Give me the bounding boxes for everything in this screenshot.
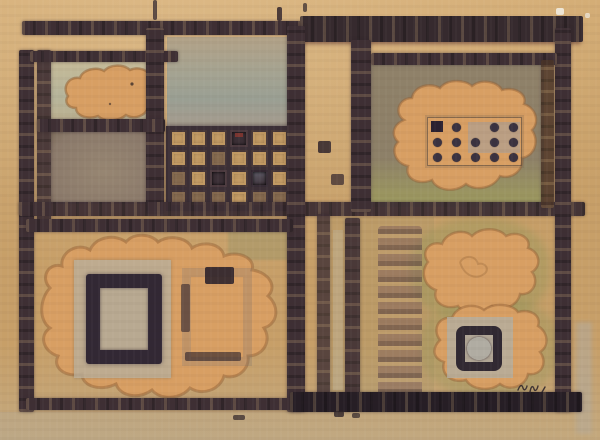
taupe-grey-cell bbox=[51, 131, 148, 204]
stamp-square-marker bbox=[431, 121, 443, 132]
stamp-dot bbox=[509, 138, 518, 147]
waffle-cell bbox=[210, 170, 227, 187]
streak-vertical bbox=[345, 218, 360, 398]
stamp-dot bbox=[509, 153, 518, 162]
bottom-tick-mark bbox=[352, 413, 360, 418]
top-tick-mark bbox=[303, 3, 307, 12]
waffle-cell bbox=[230, 150, 247, 167]
stamp-dot bbox=[509, 123, 518, 132]
stamp-dot bbox=[471, 153, 480, 162]
stamp-dot bbox=[490, 123, 499, 132]
waffle-cell bbox=[271, 130, 288, 147]
bottom-margin-wash bbox=[0, 412, 600, 440]
frame-h-below-blob-cell bbox=[37, 119, 165, 132]
waffle-cell bbox=[271, 150, 288, 167]
dark-patch bbox=[205, 267, 234, 284]
waffle-cell bbox=[251, 150, 268, 167]
stamp-dot bbox=[452, 153, 461, 162]
frame-bottom-band-right bbox=[290, 392, 582, 412]
waffle-cell bbox=[210, 150, 227, 167]
dot-grid-stamp bbox=[427, 117, 522, 166]
waffle-cell bbox=[190, 150, 207, 167]
frame-bottom-band-left bbox=[26, 398, 302, 410]
signature-mark bbox=[516, 381, 548, 393]
stamp-dot bbox=[452, 123, 461, 132]
stamp-dot bbox=[452, 138, 461, 147]
waffle-cell bbox=[271, 170, 288, 187]
waffle-cell bbox=[190, 130, 207, 147]
small-dark-mark bbox=[318, 141, 331, 153]
frame-right-section-left bbox=[351, 40, 371, 212]
waffle-cell bbox=[230, 130, 247, 147]
frame-top-band-right bbox=[300, 16, 583, 42]
waffle-cell bbox=[230, 170, 247, 187]
stamp-dot bbox=[433, 153, 442, 162]
frame-right-inner-top bbox=[371, 53, 557, 65]
waffle-cell bbox=[190, 170, 207, 187]
dark-patch bbox=[181, 284, 190, 332]
dark-patch bbox=[185, 352, 241, 361]
bottom-tick-mark bbox=[233, 415, 245, 420]
stamp-dot bbox=[471, 138, 480, 147]
waffle-stamp-grid bbox=[166, 126, 292, 211]
waffle-cell bbox=[210, 130, 227, 147]
frame-bottom-left-cell-top bbox=[26, 219, 293, 232]
mauve-streak-band bbox=[378, 226, 422, 398]
waffle-cell bbox=[170, 150, 187, 167]
pale-streak bbox=[333, 230, 343, 390]
waffle-cell bbox=[170, 170, 187, 187]
top-tick-mark bbox=[153, 0, 157, 20]
streak-vertical bbox=[317, 214, 330, 396]
circle-square-stamp bbox=[456, 326, 502, 371]
bottom-tick-mark bbox=[334, 411, 344, 417]
white-paint-speck bbox=[556, 8, 564, 15]
stamp-dot bbox=[490, 153, 499, 162]
stamp-circle-hole bbox=[467, 337, 491, 360]
hollow-square-stamp bbox=[86, 274, 162, 364]
frame-left-inner bbox=[37, 50, 51, 222]
waffle-cell bbox=[251, 130, 268, 147]
stamp-dot bbox=[490, 138, 499, 147]
small-dark-mark bbox=[331, 174, 344, 185]
waffle-cell bbox=[170, 130, 187, 147]
frame-top-band-left bbox=[22, 21, 306, 35]
waffle-cell bbox=[251, 170, 268, 187]
white-paint-speck bbox=[585, 13, 590, 18]
stamp-dot bbox=[433, 138, 442, 147]
painting-canvas bbox=[0, 0, 600, 440]
pale-green-grey-cell bbox=[167, 37, 287, 126]
frame-right-outer bbox=[555, 28, 571, 412]
frame-right-inner-right bbox=[541, 60, 554, 208]
top-tick-mark bbox=[277, 7, 282, 21]
